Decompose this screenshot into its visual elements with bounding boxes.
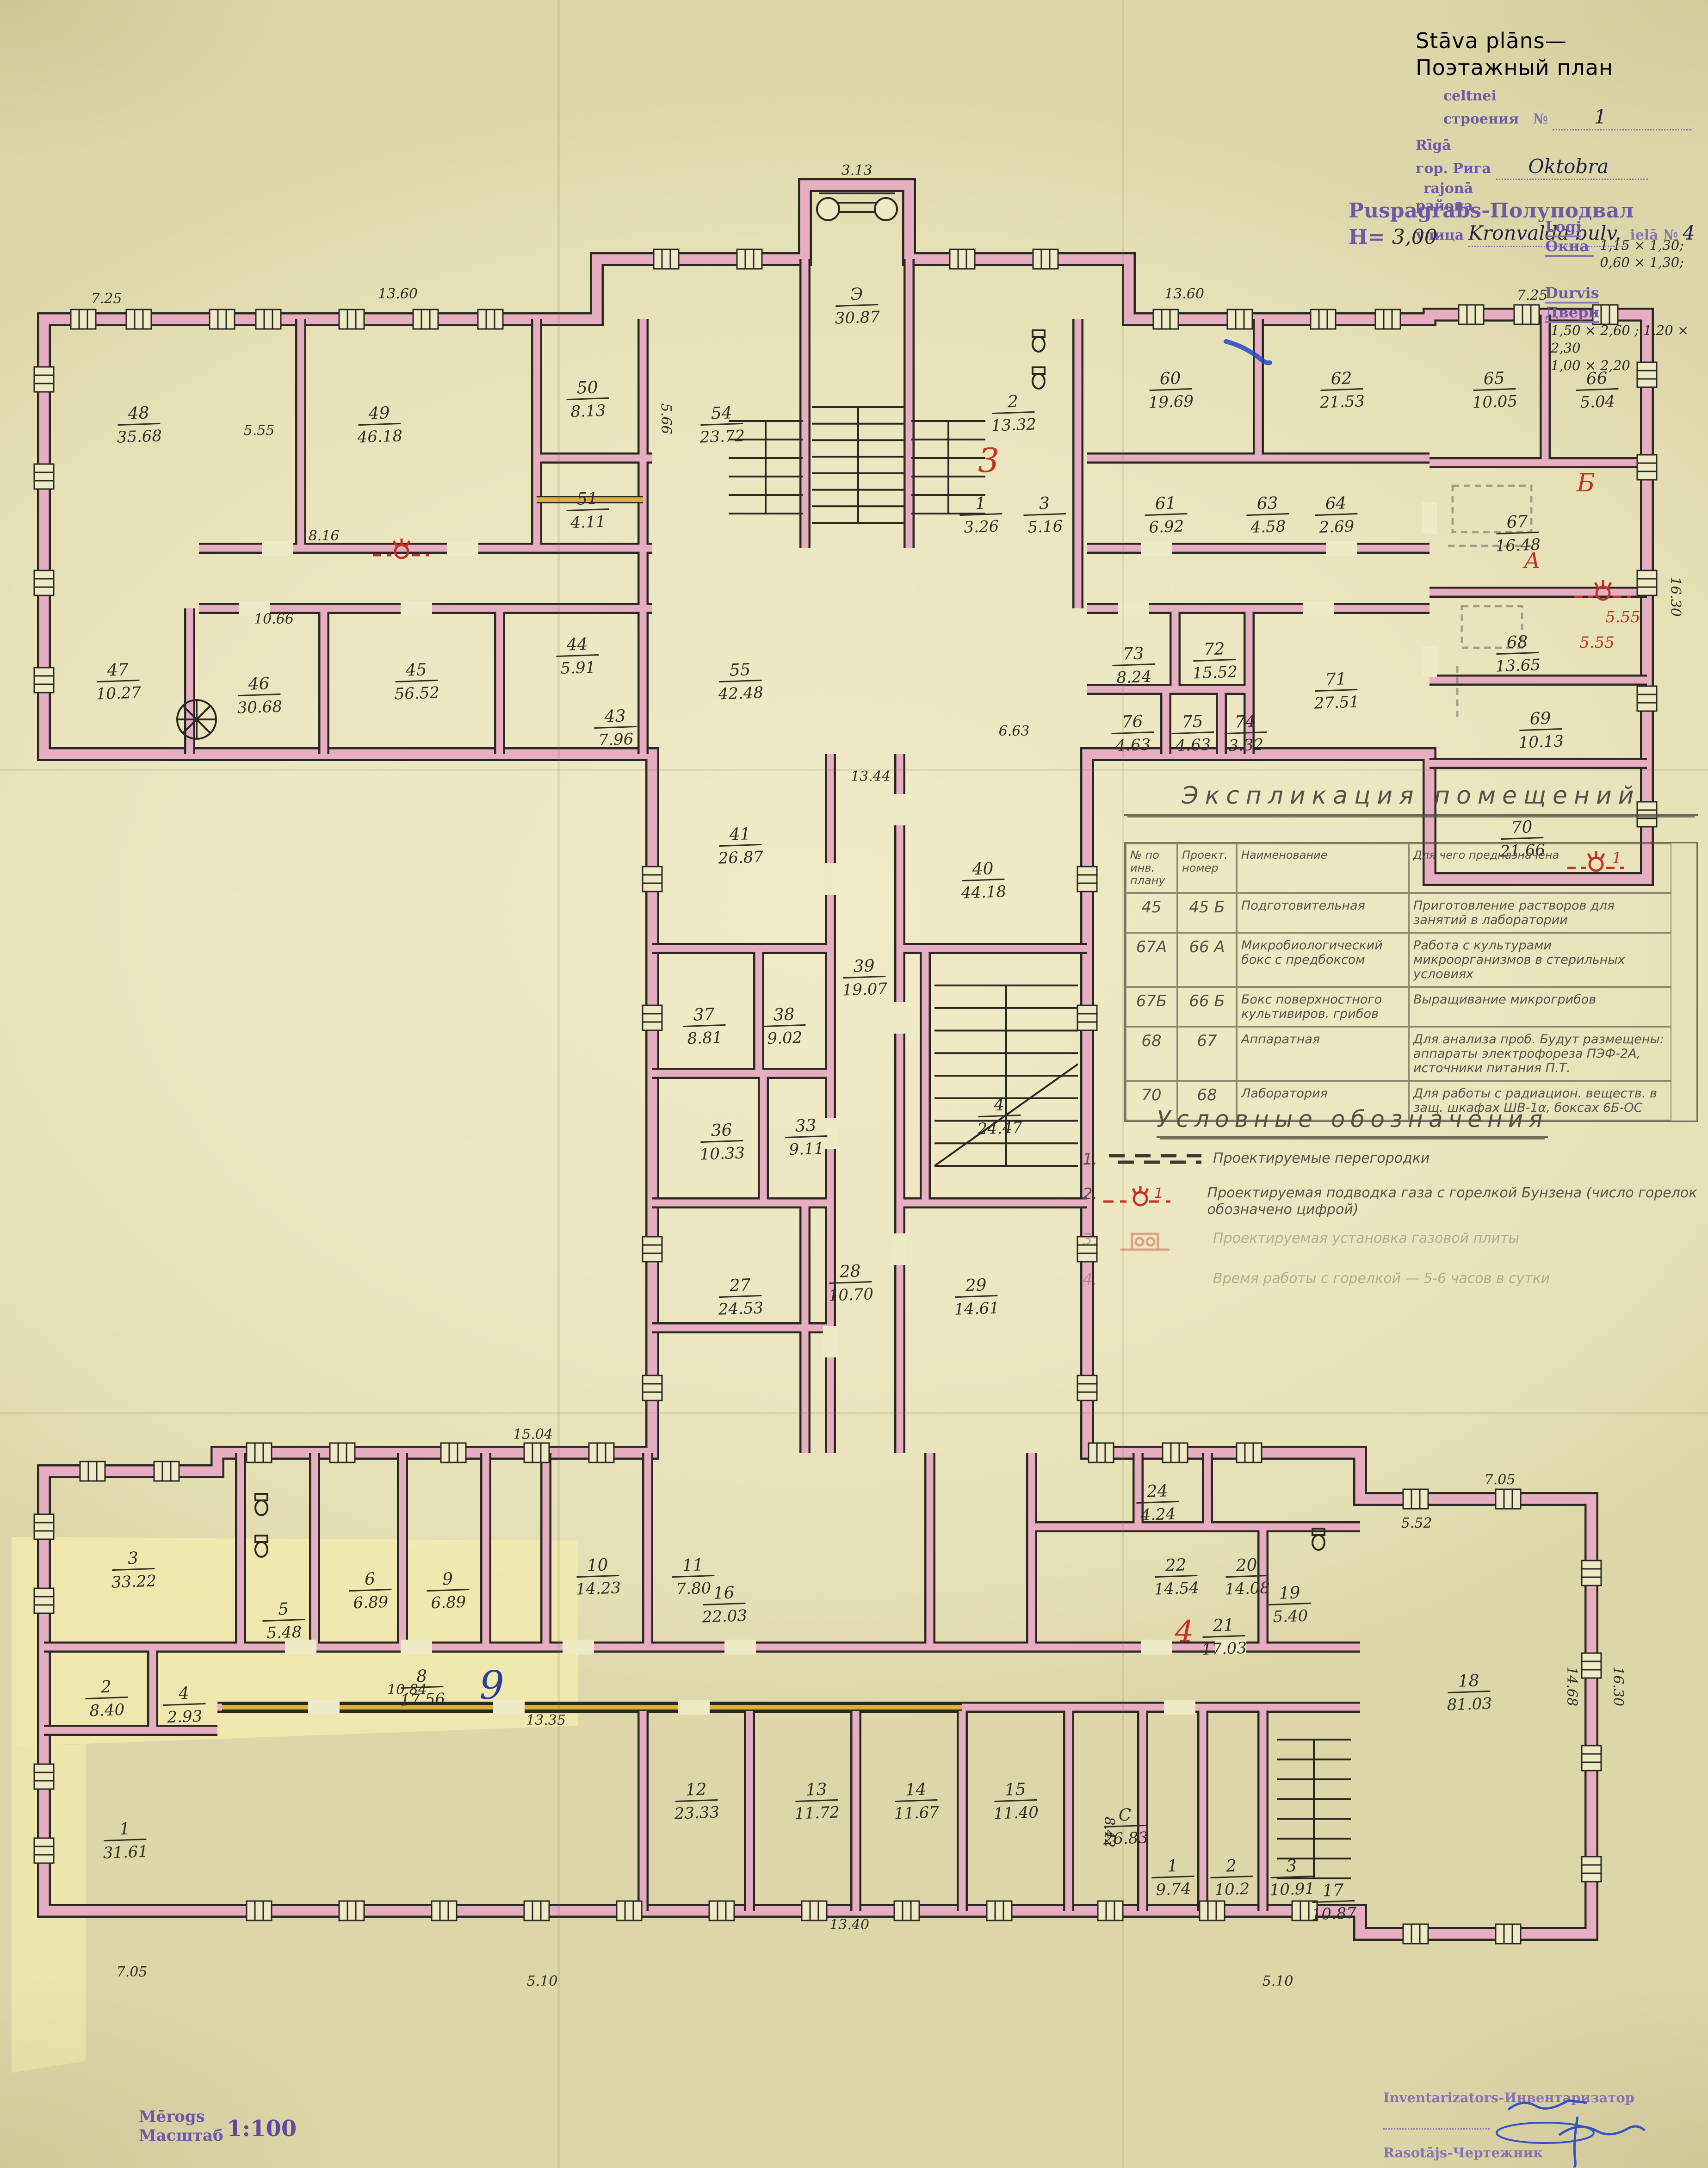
window-icon: [617, 1901, 642, 1920]
room-label: 6019.69: [1147, 368, 1194, 412]
svg-text:1: 1: [975, 494, 986, 514]
room-label: 6510.05: [1471, 368, 1517, 412]
doors-sizes: 1,50 × 2,60 ; 1,20 × 2,301,00 × 2,20: [1551, 322, 1708, 374]
svg-text:3: 3: [1286, 1857, 1297, 1876]
spiral-staircase: [177, 700, 216, 739]
legend-item: 4.Время работы с горелкой — 5-6 часов в …: [1083, 1270, 1698, 1289]
room-label: 1511.40: [992, 1779, 1039, 1823]
svg-text:44.18: 44.18: [960, 882, 1007, 902]
window-icon: [34, 1514, 54, 1539]
svg-text:2: 2: [1225, 1857, 1237, 1876]
svg-text:46.18: 46.18: [357, 427, 403, 446]
scale-stamp: MērogsМасштаб 1:100: [139, 2107, 223, 2145]
annotation-mark: 4: [1175, 1615, 1194, 1649]
svg-text:30.68: 30.68: [237, 697, 283, 717]
toilet-icon: [1033, 330, 1045, 352]
svg-text:4.58: 4.58: [1250, 517, 1286, 537]
room-label: 339.11: [784, 1115, 828, 1159]
svg-text:19.07: 19.07: [842, 979, 888, 999]
svg-text:6.89: 6.89: [353, 1593, 389, 1613]
explication-cell: 45: [1126, 893, 1177, 933]
svg-text:10.70: 10.70: [828, 1285, 874, 1305]
dimension-label: 13.60: [1164, 286, 1204, 302]
building-no-handwritten: 1: [1594, 105, 1607, 128]
svg-text:14.23: 14.23: [576, 1579, 621, 1598]
explication-cell: Для анализа проб. Будут размещены: аппар…: [1409, 1027, 1671, 1081]
svg-text:19.69: 19.69: [1148, 392, 1194, 412]
window-icon: [1637, 686, 1657, 711]
window-icon: [1496, 1489, 1521, 1509]
svg-text:65: 65: [1483, 369, 1505, 389]
staircase: [911, 421, 985, 514]
svg-text:17: 17: [1322, 1881, 1344, 1901]
svg-text:23.33: 23.33: [674, 1803, 720, 1823]
explication-header: Для чего предназначена: [1409, 843, 1671, 893]
window-icon: [1227, 310, 1252, 329]
svg-text:9: 9: [442, 1570, 453, 1589]
explication-cell: 45 Б: [1177, 893, 1237, 933]
explication-cell: Приготовление растворов для занятий в ла…: [1409, 893, 1671, 933]
window-icon: [987, 1901, 1012, 1920]
svg-text:4.63: 4.63: [1175, 736, 1211, 756]
room-label: Э30.87: [834, 284, 880, 328]
svg-text:62: 62: [1331, 369, 1352, 389]
window-icon: [247, 1901, 272, 1920]
door-gap: [1118, 601, 1149, 616]
door-gap: [1422, 646, 1437, 677]
room-label: 738.24: [1112, 644, 1156, 687]
svg-text:11: 11: [682, 1555, 704, 1575]
svg-text:47: 47: [106, 660, 129, 680]
svg-text:33: 33: [795, 1116, 817, 1136]
room-label: 1881.03: [1446, 1671, 1492, 1714]
window-icon: [1237, 1443, 1262, 1462]
dimension-label: 16.30: [1610, 1666, 1626, 1706]
room-label: 1710.87: [1310, 1880, 1357, 1924]
svg-text:41: 41: [729, 824, 751, 844]
window-icon: [1496, 1924, 1521, 1944]
svg-text:38: 38: [773, 1005, 795, 1025]
room-label: 4630.68: [236, 674, 282, 717]
room-label: 117.80: [671, 1555, 715, 1598]
draftsman-label: Rasotājs-Чертежник: [1383, 2145, 1543, 2161]
svg-text:56.52: 56.52: [394, 683, 440, 703]
explication-cell: Микробиологичес­кий бокс с предбоксом: [1237, 933, 1409, 987]
dimension-label: 6.63: [999, 723, 1030, 739]
dimension-label: 13.40: [829, 1917, 869, 1933]
svg-text:61: 61: [1155, 494, 1176, 514]
legend-symbol-gas-stove: [1107, 1230, 1213, 1258]
svg-text:5.48: 5.48: [266, 1623, 302, 1643]
door-gap: [1326, 541, 1357, 556]
building-label: celtnei строения: [1443, 88, 1524, 127]
door-gap: [1141, 541, 1172, 556]
svg-text:13: 13: [805, 1780, 827, 1800]
window-icon: [80, 1462, 105, 1481]
svg-text:73: 73: [1122, 644, 1144, 664]
window-icon: [524, 1901, 549, 1920]
legend-symbol-gas-burner: 1: [1101, 1185, 1207, 1214]
window-icon: [34, 1764, 54, 1789]
svg-text:26.87: 26.87: [718, 848, 764, 867]
dimension-label: 7.05: [117, 1964, 148, 1980]
svg-text:72: 72: [1203, 639, 1225, 659]
room-label: 4044.18: [959, 859, 1006, 902]
window-icon: [1375, 310, 1400, 329]
door-gap: [285, 1640, 316, 1654]
svg-text:9.11: 9.11: [789, 1140, 824, 1159]
svg-text:3: 3: [127, 1549, 138, 1568]
door-gap: [892, 794, 907, 825]
door-gap: [1303, 601, 1334, 616]
window-icon: [478, 310, 503, 329]
window-icon: [1089, 1443, 1114, 1462]
door-gap: [823, 863, 838, 895]
svg-text:22.03: 22.03: [701, 1606, 748, 1626]
legend-item-text: Проектируемая установка газовой плиты: [1213, 1230, 1519, 1247]
dimension-label: 13.60: [378, 286, 418, 302]
svg-text:40: 40: [972, 859, 994, 879]
svg-text:21: 21: [1212, 1616, 1234, 1635]
svg-text:22: 22: [1164, 1555, 1187, 1575]
svg-text:75: 75: [1182, 712, 1203, 732]
svg-text:19: 19: [1279, 1583, 1300, 1603]
dimension-label: 7.25: [1517, 287, 1548, 304]
window-icon: [1200, 1901, 1225, 1920]
room-label: 6910.13: [1517, 708, 1564, 752]
room-label: 764.63: [1111, 712, 1155, 755]
explication-header: Наименование: [1237, 843, 1409, 893]
svg-text:10.27: 10.27: [96, 683, 142, 703]
svg-text:31.61: 31.61: [103, 1842, 149, 1862]
svg-text:27.51: 27.51: [1313, 693, 1360, 712]
staircase: [812, 407, 904, 523]
room-label: 2724.53: [717, 1275, 763, 1319]
svg-text:5: 5: [278, 1600, 289, 1619]
room-label: 743.32: [1224, 712, 1268, 755]
window-icon: [709, 1901, 734, 1920]
svg-text:27: 27: [729, 1276, 751, 1295]
room-label: 19.74: [1151, 1856, 1195, 1899]
room-label: 195.40: [1268, 1583, 1312, 1626]
entrance-porch: [817, 193, 897, 220]
svg-text:37: 37: [693, 1005, 715, 1025]
svg-text:10.2: 10.2: [1214, 1880, 1250, 1900]
svg-text:3: 3: [1039, 494, 1050, 514]
door-gap: [447, 541, 478, 556]
toilet-icon: [255, 1494, 267, 1515]
room-label: 6221.53: [1318, 368, 1365, 412]
svg-text:15: 15: [1004, 1780, 1026, 1800]
window-icon: [1403, 1489, 1428, 1509]
svg-text:35.68: 35.68: [117, 427, 162, 446]
legend-symbol-dashed-partition: [1107, 1150, 1213, 1173]
dimension-label: 10.66: [254, 611, 294, 627]
legend-block: Условные обозначения 1.Проектируемые пер…: [1083, 1106, 1698, 1289]
dimension-label: 5.10: [1262, 1973, 1293, 1989]
explication-cell: Подготовитель­ная: [1237, 893, 1409, 933]
inventory-officer-label: Inventarizators-Инвентаризатор: [1383, 2090, 1634, 2106]
room-label: 6813.65: [1494, 632, 1541, 675]
dimension-label: 13.35: [526, 1712, 566, 1728]
svg-text:6.89: 6.89: [431, 1593, 466, 1613]
room-label: 131.61: [102, 1819, 148, 1862]
door-gap: [678, 1700, 710, 1715]
svg-text:Э: Э: [850, 285, 863, 304]
explication-header: № по инв. плану: [1126, 843, 1177, 893]
window-icon: [802, 1901, 827, 1920]
svg-text:13.32: 13.32: [991, 415, 1037, 435]
room-label: 1223.33: [673, 1779, 719, 1823]
door-gap: [724, 1640, 756, 1654]
window-icon: [950, 249, 975, 269]
explication-title: Экспликация помещений: [1124, 782, 1698, 816]
explication-cell: 67А: [1126, 933, 1177, 987]
svg-text:10.13: 10.13: [1518, 732, 1564, 752]
svg-text:60: 60: [1159, 369, 1181, 389]
room-label: 754.63: [1171, 712, 1215, 755]
room-label: 1311.72: [793, 1779, 840, 1823]
svg-text:81.03: 81.03: [1447, 1694, 1492, 1714]
window-icon: [34, 464, 54, 489]
room-label: 210.2: [1210, 1856, 1254, 1899]
windows-sizes: 1,15 × 1,30;0,60 × 1,30;: [1600, 237, 1684, 272]
window-icon: [247, 1443, 272, 1462]
svg-text:4: 4: [178, 1684, 189, 1703]
svg-text:10.91: 10.91: [1269, 1879, 1315, 1899]
window-icon: [210, 310, 235, 329]
signature-block: Inventarizators-Инвентаризатор Rasotājs-…: [1383, 2084, 1689, 2168]
door-gap: [1164, 1700, 1195, 1715]
svg-text:17.03: 17.03: [1201, 1639, 1247, 1659]
window-icon: [34, 1838, 54, 1863]
room-label: 378.81: [682, 1004, 726, 1048]
svg-text:8.24: 8.24: [1116, 668, 1152, 688]
explication-cell: Аппаратная: [1237, 1027, 1409, 1081]
svg-text:10.87: 10.87: [1311, 1904, 1357, 1924]
window-icon: [34, 367, 54, 392]
city-label: Rīgā гор. Рига: [1416, 137, 1496, 177]
window-icon: [432, 1901, 457, 1920]
openings-note: LogiОкна 1,15 × 1,30;0,60 × 1,30; Durvis…: [1545, 217, 1708, 374]
sheet-title: Stāva plāns—Поэтажный план: [1416, 28, 1698, 81]
explication-cell: 67Б: [1126, 987, 1177, 1027]
room-label: 5542.48: [717, 660, 763, 703]
window-icon: [1403, 1924, 1428, 1944]
window-icon: [654, 249, 679, 269]
legend-item: 1.Проектируемые перегородки: [1083, 1150, 1698, 1173]
svg-text:74: 74: [1234, 712, 1256, 732]
scale-label: MērogsМасштаб: [139, 2107, 223, 2145]
svg-text:7.80: 7.80: [676, 1579, 712, 1599]
explication-cell: 66 Б: [1177, 987, 1237, 1027]
svg-text:2.93: 2.93: [167, 1707, 203, 1727]
window-icon: [413, 310, 438, 329]
svg-text:10.33: 10.33: [699, 1144, 745, 1164]
room-label: 7127.51: [1312, 669, 1359, 712]
room-label: 3919.07: [841, 956, 888, 999]
explication-block: Экспликация помещений № по инв. плануПро…: [1124, 782, 1698, 1122]
svg-text:2: 2: [100, 1678, 111, 1697]
svg-text:67: 67: [1506, 512, 1528, 532]
legend-items: 1.Проектируемые перегородки2.1Проектируе…: [1083, 1150, 1698, 1289]
room-label: 508.13: [566, 378, 610, 421]
svg-text:28: 28: [839, 1262, 861, 1282]
svg-text:24.53: 24.53: [718, 1299, 764, 1319]
svg-text:4.63: 4.63: [1115, 736, 1151, 756]
room-label: 1411.67: [893, 1779, 940, 1823]
door-gap: [401, 601, 432, 616]
svg-text:3.26: 3.26: [964, 517, 999, 537]
explication-header: Проект. номер: [1177, 843, 1237, 893]
svg-text:36: 36: [711, 1121, 732, 1140]
svg-text:6.92: 6.92: [1149, 517, 1184, 537]
svg-text:48: 48: [127, 403, 149, 423]
svg-text:1: 1: [1167, 1857, 1178, 1876]
staircase: [934, 985, 1078, 1166]
window-icon: [1153, 310, 1178, 329]
window-icon: [643, 1237, 662, 1262]
svg-text:11.40: 11.40: [993, 1803, 1039, 1823]
room-label: 2117.03: [1201, 1615, 1247, 1659]
window-icon: [126, 310, 151, 329]
scanned-floor-plan-sheet: { "title_stamp": { "title": "Stāva plāns…: [0, 0, 1708, 2168]
room-label: 4126.87: [717, 824, 764, 867]
svg-text:23.72: 23.72: [699, 427, 745, 446]
room-label: 4710.27: [95, 660, 142, 703]
window-icon: [34, 1588, 54, 1613]
window-icon: [643, 867, 662, 892]
room-label: 4556.52: [393, 660, 439, 703]
dimension-label: 10.84: [387, 1682, 427, 1698]
svg-text:14.54: 14.54: [1154, 1579, 1200, 1598]
annotation-mark: 5.55: [1579, 633, 1615, 652]
dimension-label: 8.42: [1101, 1817, 1117, 1848]
window-icon: [1582, 1561, 1601, 1586]
window-icon: [737, 249, 762, 269]
legend-item: 2.1Проектируемая подводка газа с горелко…: [1083, 1185, 1698, 1218]
scale-value: 1:100: [227, 2116, 297, 2142]
window-icon: [524, 1443, 549, 1462]
window-icon: [643, 1375, 662, 1400]
doors-label: DurvisДвери: [1545, 284, 1599, 323]
svg-text:12: 12: [685, 1780, 707, 1800]
dimension-label: 13.44: [851, 768, 891, 785]
svg-text:15.52: 15.52: [1192, 663, 1238, 682]
dimension-label: 7.05: [1485, 1472, 1516, 1488]
svg-text:29: 29: [965, 1276, 987, 1295]
window-icon: [1637, 570, 1657, 595]
room-label: 514.11: [566, 489, 610, 532]
svg-text:50: 50: [576, 378, 598, 398]
dimension-label: 5.52: [1401, 1515, 1432, 1531]
svg-text:5.40: 5.40: [1273, 1607, 1308, 1627]
svg-text:44: 44: [566, 635, 588, 655]
svg-text:4.24: 4.24: [1140, 1505, 1176, 1525]
windows-label: LogiОкна: [1545, 218, 1594, 257]
svg-text:10.05: 10.05: [1472, 392, 1518, 412]
room-label: 213.32: [990, 391, 1036, 435]
dimension-label: 5.10: [527, 1973, 558, 1989]
window-icon: [589, 1443, 614, 1462]
svg-text:6: 6: [364, 1570, 375, 1589]
door-gap: [1422, 502, 1437, 534]
svg-text:45: 45: [405, 660, 427, 680]
svg-text:68: 68: [1506, 632, 1528, 652]
room-label: 7215.52: [1191, 639, 1238, 682]
room-label: 424.47: [976, 1095, 1023, 1138]
room-label: 634.58: [1246, 493, 1290, 537]
svg-text:54: 54: [711, 403, 732, 423]
dimension-label: 14.68: [1564, 1666, 1580, 1706]
room-label: 642.69: [1314, 493, 1358, 537]
legend-item-text: Проектируемая подводка газа с горелкой Б…: [1207, 1185, 1698, 1218]
window-icon: [1077, 1375, 1097, 1400]
annotation-mark: 9: [479, 1663, 504, 1708]
dimension-label: 15.04: [513, 1426, 553, 1443]
svg-text:69: 69: [1529, 709, 1551, 729]
legend-item: 3.Проектируемая установка газовой плиты: [1083, 1230, 1698, 1258]
window-icon: [1033, 249, 1058, 269]
room-label: 3610.33: [699, 1120, 745, 1164]
room-label: 5423.72: [698, 403, 745, 446]
svg-text:1: 1: [1154, 1185, 1163, 1202]
svg-text:14.08: 14.08: [1225, 1579, 1270, 1598]
window-icon: [441, 1443, 466, 1462]
explication-cell: 67: [1177, 1027, 1237, 1081]
svg-text:51: 51: [576, 489, 598, 509]
door-gap: [308, 1700, 340, 1715]
window-icon: [1459, 305, 1484, 324]
svg-text:1: 1: [119, 1820, 130, 1839]
dimension-label: 16.30: [1667, 577, 1683, 617]
svg-text:5.16: 5.16: [1027, 517, 1063, 537]
window-icon: [1514, 305, 1539, 324]
window-icon: [154, 1462, 179, 1481]
no-sign: №: [1533, 111, 1548, 127]
porch-column: [875, 198, 897, 220]
room-label: 1014.23: [575, 1555, 621, 1598]
svg-text:5.91: 5.91: [560, 658, 596, 678]
svg-text:46: 46: [248, 674, 270, 694]
door-gap: [1141, 1640, 1172, 1654]
window-icon: [1637, 455, 1657, 480]
window-icon: [1582, 1746, 1601, 1771]
door-gap: [401, 1640, 432, 1654]
svg-text:4: 4: [993, 1096, 1004, 1115]
annotation-mark: 5.55: [1605, 608, 1640, 626]
room-label: 2914.61: [953, 1275, 999, 1319]
door-gap: [823, 1326, 838, 1357]
svg-text:18: 18: [1458, 1671, 1479, 1691]
legend-title: Условные обозначения: [1157, 1106, 1548, 1138]
svg-text:24: 24: [1146, 1481, 1168, 1501]
porch-column: [817, 198, 839, 220]
window-icon: [330, 1443, 355, 1462]
annotation-mark: А: [1522, 548, 1541, 574]
svg-text:9.02: 9.02: [767, 1028, 803, 1048]
window-icon: [894, 1901, 919, 1920]
svg-text:30.87: 30.87: [835, 308, 880, 328]
svg-text:13.65: 13.65: [1495, 656, 1541, 675]
svg-text:10: 10: [587, 1555, 608, 1575]
dimension-label: 3.13: [842, 162, 873, 179]
door-gap: [823, 1118, 838, 1149]
svg-text:8.40: 8.40: [89, 1701, 125, 1721]
svg-text:2: 2: [1007, 392, 1018, 412]
svg-text:16: 16: [713, 1583, 735, 1603]
svg-text:14.61: 14.61: [954, 1299, 1000, 1319]
